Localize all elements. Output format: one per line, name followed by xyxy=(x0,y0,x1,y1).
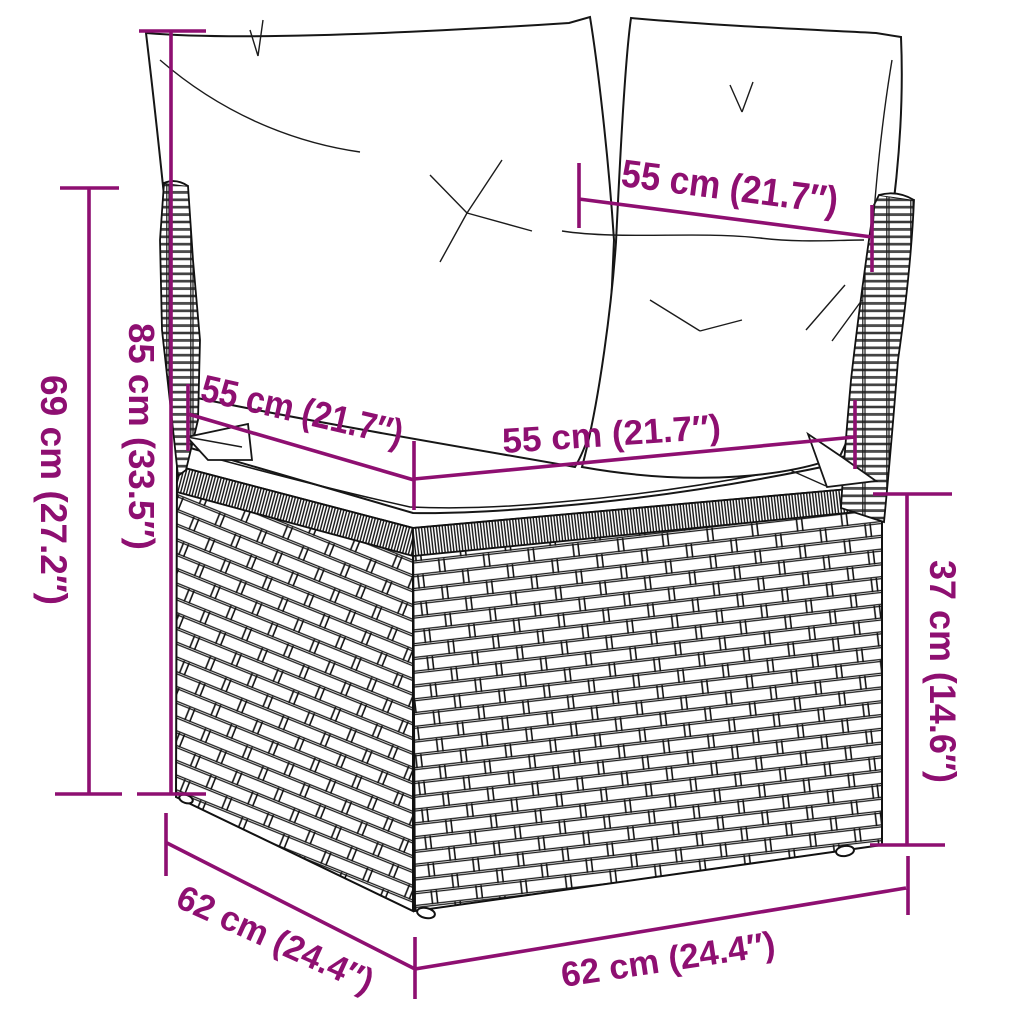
svg-text:69 cm (27.2″): 69 cm (27.2″) xyxy=(33,375,74,605)
svg-text:37 cm (14.6″): 37 cm (14.6″) xyxy=(922,560,963,783)
svg-text:85 cm (33.5″): 85 cm (33.5″) xyxy=(121,323,162,550)
